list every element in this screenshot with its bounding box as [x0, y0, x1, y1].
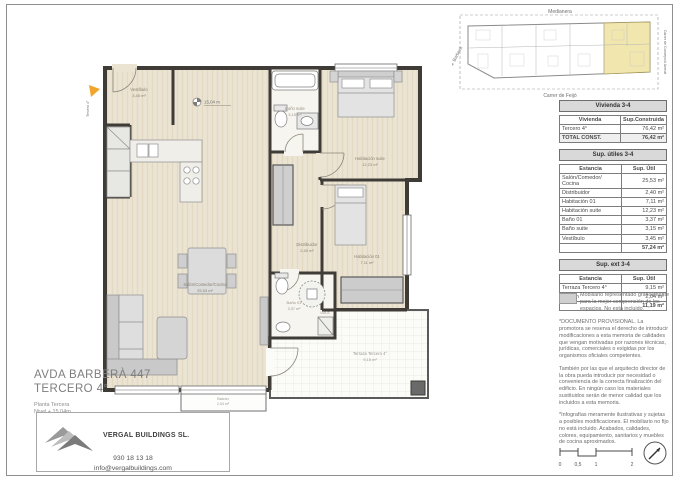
level-marker-value: 15,04 m	[204, 100, 220, 105]
table-row-total: TOTAL CONST. 76,42 m²	[560, 134, 667, 143]
disclaimer-paragraph-1: *DOCUMENTO PROVISIONAL. La promotora se …	[559, 319, 669, 360]
street-label-right: Carrer de Concepció Arenal	[663, 30, 667, 75]
company-logo-icon	[43, 417, 99, 453]
table-row: Tercero 4° 76,42 m²	[560, 125, 667, 134]
scale-tick-0: 0	[559, 462, 562, 468]
table-utiles: Estancia Sup. Útil Salón/Comedor/ Cocina…	[559, 164, 667, 252]
svg-text:Terraza Tercero 4°: Terraza Tercero 4°	[353, 351, 388, 356]
phone-number: 930 18 13 18	[37, 454, 229, 464]
terrace-drain	[411, 381, 425, 395]
project-title-line1: AVDA BARBERÀ 447	[34, 368, 244, 382]
svg-text:9,15 m²: 9,15 m²	[363, 357, 377, 362]
table-title-vivienda: Vivienda 3-4	[559, 100, 667, 112]
room-label-vestibulo: Vestíbulo 3,45 m²	[130, 87, 148, 98]
table-row: Habitación suite 12,23 m²	[560, 207, 667, 216]
table-title-ext: Sup. ext 3-4	[559, 259, 667, 271]
area-tables: Vivienda 3-4 Vivienda Sup.Construida Ter…	[559, 100, 667, 317]
street-label-top: Medianera	[548, 9, 572, 15]
north-compass-icon	[644, 442, 666, 464]
email-address: info@vergalbuildings.com	[37, 464, 229, 474]
scale-bar	[560, 448, 632, 456]
entry-marker-label: Tercero 4°	[86, 100, 90, 117]
svg-text:Baño 01: Baño 01	[287, 300, 303, 305]
table-row: Habitación 01 7,11 m²	[560, 198, 667, 207]
svg-text:Habitación 01: Habitación 01	[354, 254, 380, 259]
svg-text:Salón/Comedor/Cocina: Salón/Comedor/Cocina	[183, 282, 227, 287]
svg-text:7,11 m²: 7,11 m²	[360, 260, 374, 265]
scale-and-compass: 0 0,5 1 2	[556, 440, 670, 474]
furniture-note: Mobiliario representado gráficamente par…	[580, 292, 669, 312]
entry-arrow: Tercero 4°	[86, 85, 100, 117]
floor-label: Planta Tercera	[34, 402, 244, 410]
closet-label: LV/LS	[321, 311, 331, 315]
svg-text:Habitación suite: Habitación suite	[355, 156, 385, 161]
project-title-line2: TERCERO 4°	[34, 382, 244, 396]
street-label-bottom: Carrer de Feijó	[543, 93, 577, 99]
svg-text:Vestíbulo: Vestíbulo	[130, 87, 148, 92]
table-row-total: 57,24 m²	[560, 243, 667, 252]
table-row: Terraza Tercero 4° 9,15 m²	[560, 283, 667, 292]
table-row: Distribuidor 2,40 m²	[560, 189, 667, 198]
svg-text:3,37 m²: 3,37 m²	[288, 307, 302, 311]
table-row: Vivienda Sup.Construida	[560, 116, 667, 125]
company-name: VERGAL BUILDINGS SL.	[103, 432, 189, 439]
svg-text:25,53 m²: 25,53 m²	[197, 288, 213, 293]
tv-unit	[260, 297, 268, 345]
building-footprint	[468, 22, 650, 78]
svg-text:2,40 m²: 2,40 m²	[300, 248, 314, 253]
scale-tick-1: 1	[595, 462, 598, 468]
svg-text:Distribuidor: Distribuidor	[296, 242, 318, 247]
company-logo-box: VERGAL BUILDINGS SL. 930 18 13 18 info@v…	[36, 412, 230, 472]
double-bed	[330, 71, 402, 117]
table-row: Estancia Sup. Útil	[560, 165, 667, 174]
table-row: Vestíbulo 3,45 m²	[560, 234, 667, 243]
scale-tick-2: 2	[631, 462, 634, 468]
table-row: Estancia Sup. Útil	[560, 274, 667, 283]
scale-tick-05: 0,5	[575, 462, 582, 468]
site-plan: Medianera Carrer de Feijó Av. Barberà Ca…	[452, 6, 668, 100]
street-label-left: Av. Barberà	[452, 45, 464, 68]
table-row: Baño 01 3,37 m²	[560, 216, 667, 225]
disclaimer-paragraph-2: También por las que el arquitecto direct…	[559, 366, 669, 407]
single-bed	[335, 185, 366, 245]
table-row: Baño suite 3,15 m²	[560, 225, 667, 234]
svg-text:Baño suite: Baño suite	[285, 106, 305, 111]
table-vivienda: Vivienda Sup.Construida Tercero 4° 76,42…	[559, 115, 667, 143]
svg-text:12,23 m²: 12,23 m²	[362, 162, 378, 167]
svg-text:3,45 m²: 3,45 m²	[132, 93, 146, 98]
svg-text:3,15 m²: 3,15 m²	[288, 112, 302, 117]
notes-section: Mobiliario representado gráficamente par…	[559, 292, 669, 452]
title-block: AVDA BARBERÀ 447 TERCERO 4° Planta Terce…	[34, 368, 244, 417]
table-title-utiles: Sup. útiles 3-4	[559, 149, 667, 161]
table-row: Salón/Comedor/ Cocina 25,53 m²	[560, 174, 667, 189]
furniture-legend-swatch	[559, 293, 577, 304]
coffee-table	[157, 317, 187, 359]
